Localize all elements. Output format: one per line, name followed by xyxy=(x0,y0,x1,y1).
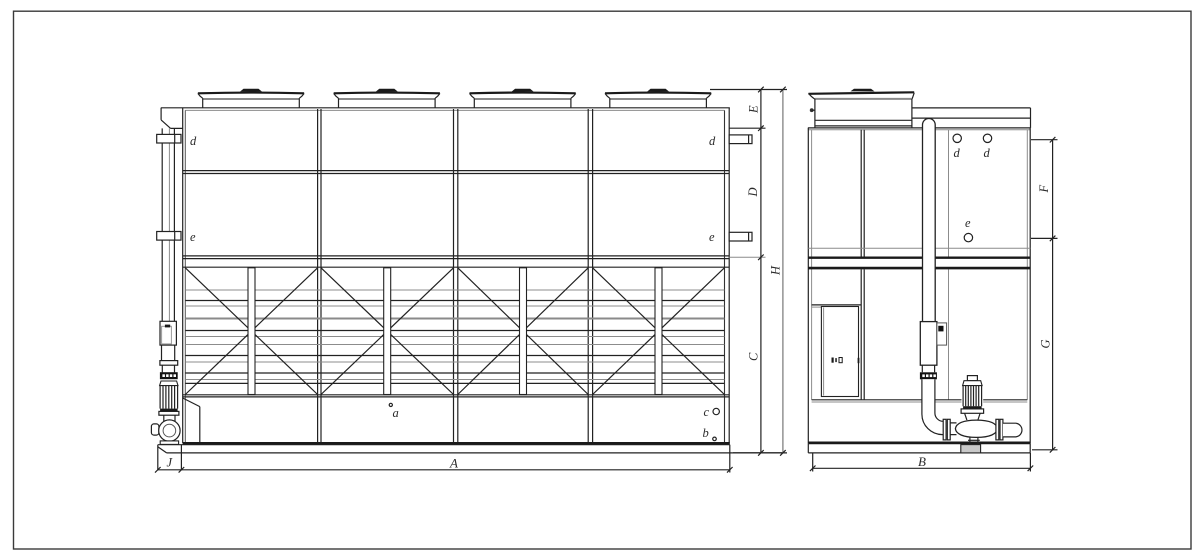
svg-text:e: e xyxy=(965,216,971,230)
svg-text:C: C xyxy=(747,352,761,361)
svg-text:b: b xyxy=(703,426,709,440)
svg-text:e: e xyxy=(709,230,715,244)
svg-text:d: d xyxy=(984,146,991,160)
svg-text:A: A xyxy=(449,456,458,471)
svg-text:G: G xyxy=(1039,339,1053,348)
svg-text:d: d xyxy=(954,146,961,160)
svg-text:F: F xyxy=(1037,185,1051,194)
svg-text:d: d xyxy=(709,134,716,148)
svg-text:D: D xyxy=(746,187,760,197)
svg-text:E: E xyxy=(747,105,761,114)
svg-text:c: c xyxy=(704,405,710,419)
svg-text:H: H xyxy=(769,265,783,276)
svg-text:e: e xyxy=(190,230,196,244)
svg-text:d: d xyxy=(190,134,197,148)
svg-text:B: B xyxy=(918,454,926,469)
svg-text:a: a xyxy=(393,406,399,420)
